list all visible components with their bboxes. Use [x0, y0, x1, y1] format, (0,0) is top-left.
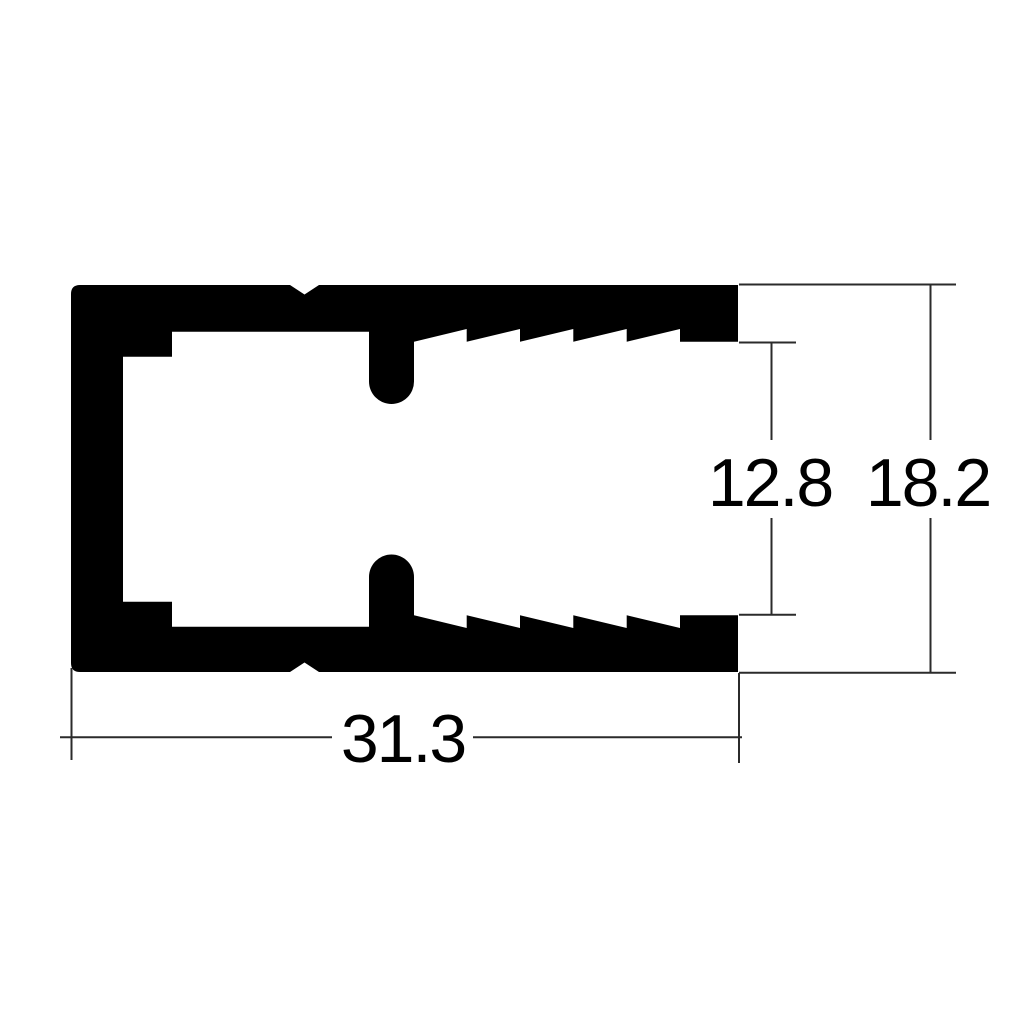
dimension-label-overall-height: 18.2 [866, 445, 990, 521]
technical-drawing-canvas: 18.2 12.8 31.3 [0, 0, 1024, 1024]
technical-drawing-page: 18.2 12.8 31.3 [0, 0, 1024, 1024]
dimension-label-slot-height: 12.8 [708, 445, 832, 521]
dimension-label-overall-width: 31.3 [341, 701, 465, 777]
extrusion-profile-silhouette [71, 285, 738, 672]
dimension-overall-width: 31.3 [60, 668, 742, 777]
dimension-slot-height: 12.8 [708, 343, 832, 615]
